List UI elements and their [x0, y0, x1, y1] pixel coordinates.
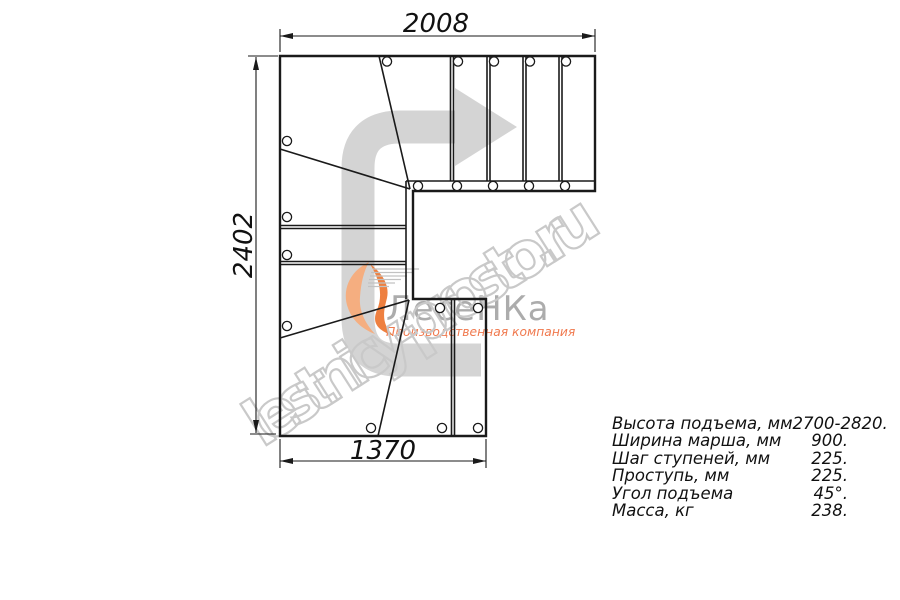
spec-value: 225. [811, 450, 848, 467]
arrow-head-icon [455, 88, 517, 166]
spec-value: 225. [811, 467, 848, 484]
spec-value: 2700-2820. [793, 415, 888, 432]
spec-label: Ширина марша, мм [612, 432, 781, 449]
spec-value: 45°. [814, 485, 849, 502]
stair-drawing-page: ЛесеНКа Производственная компания lestni… [0, 0, 900, 600]
spec-row: Масса, кг 238. [612, 502, 848, 519]
spec-row: Угол подъема 45°. [612, 485, 848, 502]
spec-label: Высота подъема, мм [612, 415, 793, 432]
spec-table: Высота подъема, мм 2700-2820. Ширина мар… [612, 415, 848, 519]
spec-label: Шаг ступеней, мм [612, 450, 770, 467]
dimension-bottom: 1370 [280, 436, 486, 468]
dimension-left-label: 2402 [229, 212, 259, 278]
spec-label: Проступь, мм [612, 467, 729, 484]
dimension-bottom-label: 1370 [350, 436, 416, 466]
dimension-top: 2008 [280, 9, 595, 52]
dimension-top-label: 2008 [403, 9, 469, 39]
spec-row: Высота подъема, мм 2700-2820. [612, 415, 848, 432]
spec-row: Ширина марша, мм 900. [612, 432, 848, 449]
spec-label: Угол подъема [612, 485, 733, 502]
spec-row: Проступь, мм 225. [612, 467, 848, 484]
spec-row: Шаг ступеней, мм 225. [612, 450, 848, 467]
spec-value: 238. [811, 502, 848, 519]
spec-value: 900. [811, 432, 848, 449]
spec-label: Масса, кг [612, 502, 694, 519]
